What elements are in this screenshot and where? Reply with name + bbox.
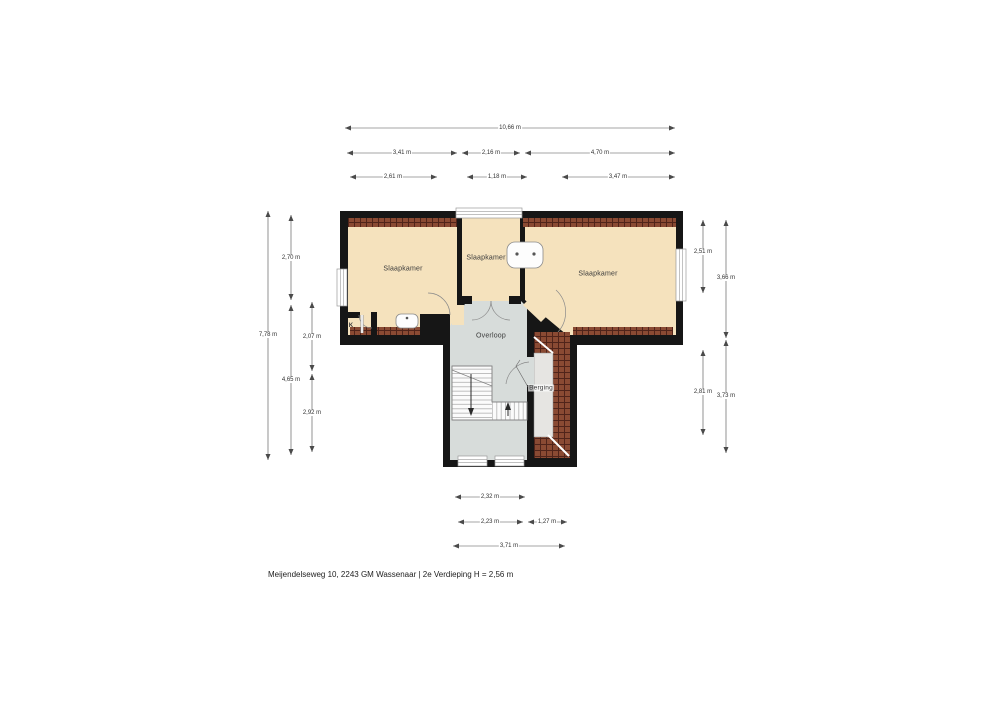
room-label-bedroom-right: Slaapkamer xyxy=(578,271,617,278)
dim-top-row3-right: 3,47 m xyxy=(608,174,628,180)
dim-right-inner-top: 2,51 m xyxy=(693,249,713,255)
double-washbasin-icon xyxy=(507,242,543,268)
window-left xyxy=(337,269,347,306)
dim-top-row3-left: 2,61 m xyxy=(383,174,403,180)
dim-left-mid-bottom: 4,65 m xyxy=(281,377,301,383)
dim-right-outer-bottom: 3,73 m xyxy=(716,393,736,399)
room-label-bedroom-left: Slaapkamer xyxy=(383,266,422,273)
floorplan-drawing xyxy=(0,0,1000,707)
room-label-closet: K xyxy=(349,323,354,329)
storage-floor xyxy=(534,353,553,437)
dim-left-mid-top: 2,70 m xyxy=(281,255,301,261)
dim-bottom-row2-left: 2,23 m xyxy=(480,519,500,525)
dim-top-row2-left: 3,41 m xyxy=(392,150,412,156)
window-bottom-left xyxy=(458,456,487,466)
dim-top-row2-middle: 2,16 m xyxy=(481,150,501,156)
dim-top-row2-right: 4,70 m xyxy=(590,150,610,156)
window-top xyxy=(456,208,522,218)
washbasin-icon xyxy=(396,314,418,328)
plan-caption: Meijendelseweg 10, 2243 GM Wassenaar | 2… xyxy=(268,570,513,579)
dim-top-total: 10,66 m xyxy=(498,125,522,131)
dim-right-outer-top: 3,66 m xyxy=(716,275,736,281)
dim-right-inner-bottom: 2,81 m xyxy=(693,389,713,395)
dim-bottom-row2-right: 1,27 m xyxy=(537,519,557,525)
room-label-storage: Berging xyxy=(528,385,554,392)
window-right xyxy=(676,249,686,301)
dim-left-total: 7,78 m xyxy=(258,332,278,338)
dim-left-inner-top: 2,07 m xyxy=(302,334,322,340)
dim-bottom-row1: 2,32 m xyxy=(480,494,500,500)
dim-bottom-row3: 3,71 m xyxy=(499,543,519,549)
room-label-landing: Overloop xyxy=(476,333,506,340)
floorplan-page: 10,66 m 3,41 m 2,16 m 4,70 m 2,61 m 1,18… xyxy=(0,0,1000,707)
dim-left-inner-bottom: 2,92 m xyxy=(302,410,322,416)
window-bottom-right xyxy=(495,456,524,466)
room-label-bedroom-middle: Slaapkamer xyxy=(466,255,505,262)
dim-top-row3-middle: 1,18 m xyxy=(487,174,507,180)
